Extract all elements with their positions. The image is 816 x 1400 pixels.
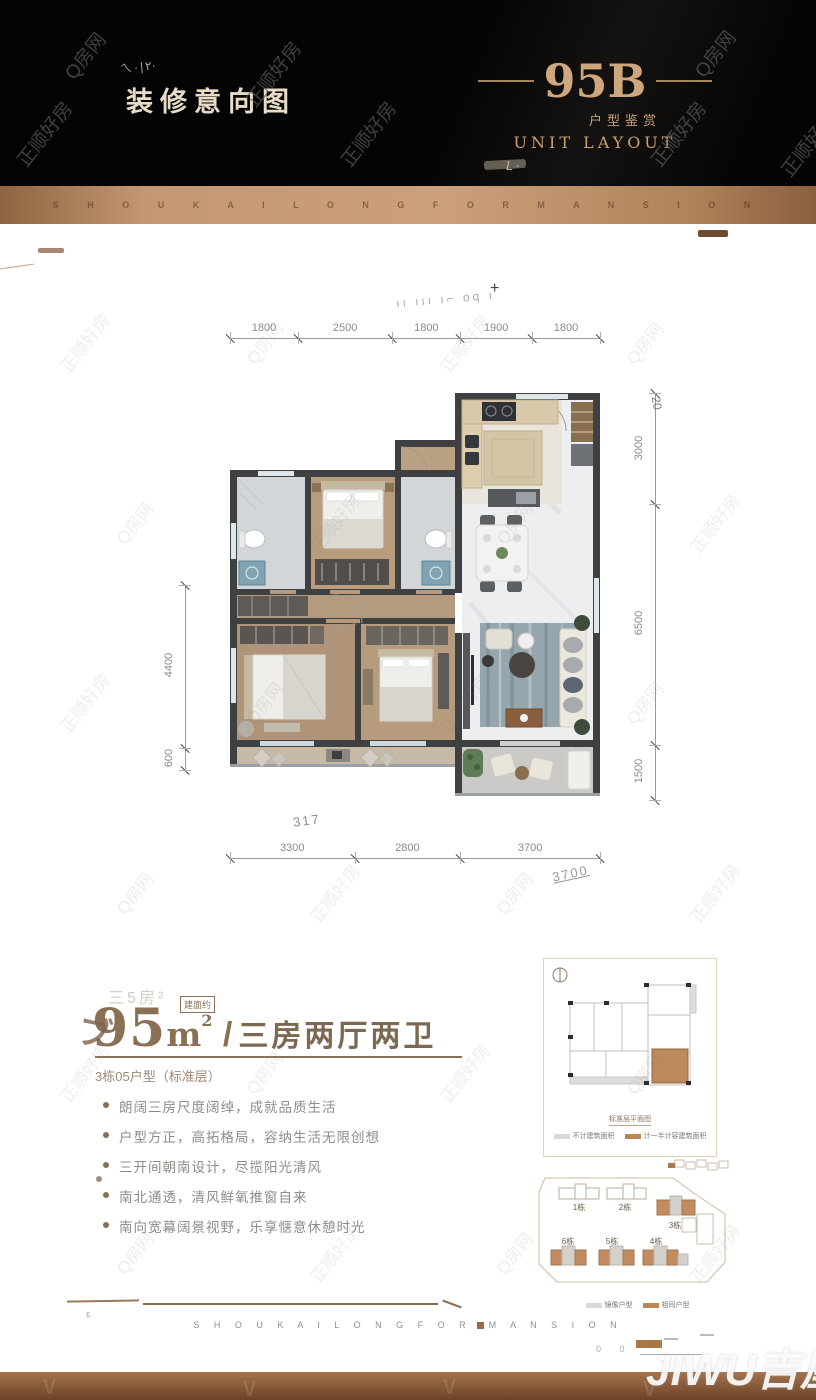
selling-points-list: 朗阔三房尺度阔绰，成就品质生活户型方正，高拓格局，容纳生活无限创想三开间朝南设计… <box>103 1096 380 1246</box>
plant <box>574 719 590 735</box>
area-title: ブ 三5房² 建面约 95m2 /三房两厅两卫 <box>92 998 436 1059</box>
legend-swatch <box>643 1303 659 1308</box>
tv-console <box>463 633 470 729</box>
area-badge: 建面约 <box>180 996 215 1013</box>
watermark-text: Q房网 <box>109 866 158 919</box>
bench <box>264 723 300 732</box>
bullet-dot-icon <box>103 1222 109 1228</box>
headboard <box>378 649 434 657</box>
dim-label: 2800 <box>355 842 461 854</box>
dim-label: 3700 <box>460 842 600 854</box>
dim-label: 1800 <box>230 322 298 334</box>
watermark-text: Q房网 <box>619 676 668 729</box>
wardrobe <box>366 626 448 645</box>
chevron-pattern: ∨ <box>440 1370 459 1400</box>
toilet <box>425 530 447 548</box>
bullet-dot-icon <box>103 1102 109 1108</box>
legend-swatch <box>554 1134 570 1139</box>
dim-label: 3000 <box>633 418 645 478</box>
dresser <box>438 653 449 709</box>
dining-set <box>476 515 528 592</box>
building-label: 6栋 <box>562 1236 574 1246</box>
scan-artifact <box>442 1300 461 1309</box>
site-plan-map: 1栋2栋3栋6栋5栋4栋 <box>525 1158 750 1290</box>
sink <box>465 435 479 448</box>
dim-label: 1800 <box>392 322 460 334</box>
handwriting-artifact: + <box>490 280 499 298</box>
dim-label: 600 <box>163 728 175 788</box>
headboard <box>244 655 253 719</box>
handwriting-artifact: ɛ <box>86 1309 90 1319</box>
site-plan-legend: 镜像户型相同户型 <box>525 1300 750 1310</box>
scan-artifact <box>698 230 728 237</box>
legend-swatch <box>625 1134 641 1139</box>
building-label: 2栋 <box>619 1202 631 1212</box>
brand-square-icon <box>477 1322 484 1329</box>
legend-swatch <box>586 1303 602 1308</box>
table-plant <box>496 547 508 559</box>
page-title: 装修意向图 <box>126 80 296 119</box>
building-1 <box>559 1184 599 1199</box>
scan-artifact <box>143 1303 438 1305</box>
ink-mark-artifact: L· <box>506 158 522 173</box>
vanity <box>239 561 265 585</box>
subtitle-cn: 户型鉴赏 <box>470 110 720 129</box>
watermark-text: 正顺好房 <box>303 858 365 927</box>
jiwu-watermark-logo: JIWU吉屋 <box>646 1334 816 1398</box>
laptop <box>332 751 342 759</box>
building-label: 5栋 <box>606 1236 618 1246</box>
area-superscript: 2 <box>201 1011 212 1030</box>
building-label: 1栋 <box>573 1202 585 1212</box>
header-scrawl-artifact: ㄟ·|٢· <box>119 56 156 77</box>
dim-label: 3300 <box>230 842 355 854</box>
site-plan: 1栋2栋3栋6栋5栋4栋 镜像户型相同户型 <box>525 1158 750 1313</box>
standard-floor-thumbnail: 标准层平面图 不计建筑面积计一半计容建筑面积 <box>543 958 717 1157</box>
scan-artifact <box>0 264 34 270</box>
watermark-text: 正顺好房 <box>53 668 115 737</box>
chevron-pattern: ∨ <box>40 1370 59 1400</box>
handwriting-artifact: 3700 <box>551 862 590 884</box>
bullet-dot-icon <box>103 1162 109 1168</box>
toilet <box>243 530 265 548</box>
page: ㄟ·|٢· 装修意向图 95B L· 户型鉴赏 UNIT LAYOUT S H … <box>0 0 816 1400</box>
building-5 <box>599 1246 634 1265</box>
selling-point: 户型方正，高拓格局，容纳生活无限创想 <box>103 1126 380 1146</box>
handwriting-artifact: 317 <box>292 811 322 830</box>
decor-line-left <box>478 80 534 82</box>
stove <box>482 402 516 421</box>
building-2 <box>607 1184 646 1199</box>
thumbnail-plan <box>544 959 714 1107</box>
lounge-chair <box>528 757 554 781</box>
dim-label: 1900 <box>460 322 532 334</box>
chair <box>238 721 254 737</box>
brand-bottom-right: M A N S I O N <box>489 1320 623 1330</box>
ghost-text-artifact: 三5房² <box>108 984 166 1008</box>
vanity <box>422 561 450 585</box>
pouf <box>515 766 529 780</box>
hall-cabinet <box>238 596 308 616</box>
brand-ribbon-top: S H O U K A I L O N G F O R M A N S I O … <box>0 186 816 224</box>
building-label: 4栋 <box>650 1236 662 1246</box>
title-underline <box>95 1056 462 1058</box>
desk <box>363 669 373 705</box>
building-4 <box>643 1246 688 1265</box>
handwriting-artifact: 20 <box>649 395 665 411</box>
bullet-dot-icon <box>103 1192 109 1198</box>
layout-text: 三房两厅两卫 <box>238 1019 436 1054</box>
dim-label: 2500 <box>298 322 392 334</box>
scan-artifact <box>67 1299 139 1302</box>
handwriting-artifact: ıı ııı ı⌐ oq ı <box>396 288 496 311</box>
watermark-text: 正顺好房 <box>683 488 745 557</box>
brand-bottom: S H O U K A I L O N G F O RM A N S I O N <box>0 1320 816 1330</box>
balcony-plant <box>463 749 483 777</box>
watermark-text: Q房网 <box>109 496 158 549</box>
handwriting-artifact: 0 0 <box>596 1344 633 1354</box>
floor-plan <box>230 393 600 800</box>
bullet-dot-icon <box>103 1132 109 1138</box>
half-area-region <box>652 1049 688 1083</box>
legend-item: 相同户型 <box>643 1300 690 1310</box>
header-banner: ㄟ·|٢· 装修意向图 95B L· 户型鉴赏 UNIT LAYOUT <box>0 0 816 186</box>
chevron-pattern: ∨ <box>240 1372 259 1400</box>
selling-point: 朗阔三房尺度阔绰，成就品质生活 <box>103 1096 380 1116</box>
headboard <box>321 481 385 490</box>
thumbnail-caption: 标准层平面图 <box>609 1114 651 1126</box>
watermark-text: 正顺好房 <box>53 308 115 377</box>
stray-dot-artifact <box>96 1176 102 1182</box>
divider-slash: / <box>223 1016 232 1054</box>
dim-label: 4400 <box>163 635 175 695</box>
building-label: 3栋 <box>669 1220 681 1230</box>
bedroom-2 <box>312 481 394 585</box>
dim-label: 1500 <box>633 741 645 801</box>
bench <box>568 751 590 789</box>
watermark-text: Q房网 <box>489 866 538 919</box>
plant <box>574 615 590 631</box>
selling-point: 南向宽幕阔景视野，乐享惬意休憩时光 <box>103 1216 380 1236</box>
living-room-furniture <box>463 615 590 735</box>
legend-item: 不计建筑面积 <box>554 1131 615 1141</box>
fridge <box>571 444 593 466</box>
unit-type-line: 3栋05户型（标准层） <box>95 1066 221 1085</box>
armchair <box>486 629 512 649</box>
subtitle-en: UNIT LAYOUT <box>470 133 720 152</box>
watermark-text: 正顺好房 <box>683 858 745 927</box>
selling-point: 南北通透，清风鲜氧推窗自来 <box>103 1186 380 1206</box>
dim-label: 6500 <box>633 593 645 653</box>
watermark-text: 正顺好房 <box>433 1038 495 1107</box>
selling-point: 三开间朝南设计，尽揽阳光清风 <box>103 1156 380 1176</box>
watermark-text: Q房网 <box>619 316 668 369</box>
dim-label: 1800 <box>532 322 600 334</box>
area-unit: m <box>166 1015 201 1054</box>
thumbnail-legend: 不计建筑面积计一半计容建筑面积 <box>544 1131 716 1141</box>
scan-artifact <box>38 248 64 253</box>
brand-bottom-left: S H O U K A I L O N G F O R <box>193 1320 471 1330</box>
legend-item: 计一半计容建筑面积 <box>625 1131 707 1141</box>
building-6 <box>551 1246 586 1265</box>
unit-code: 95B <box>544 58 647 104</box>
coffee-table <box>509 652 535 678</box>
legend-item: 镜像户型 <box>586 1300 633 1310</box>
unit-title-block: 95B L· 户型鉴赏 UNIT LAYOUT <box>470 58 720 152</box>
decor-line-right <box>656 80 712 82</box>
tv <box>471 655 474 705</box>
building-3 <box>657 1196 713 1244</box>
offsite-buildings <box>675 1160 728 1170</box>
